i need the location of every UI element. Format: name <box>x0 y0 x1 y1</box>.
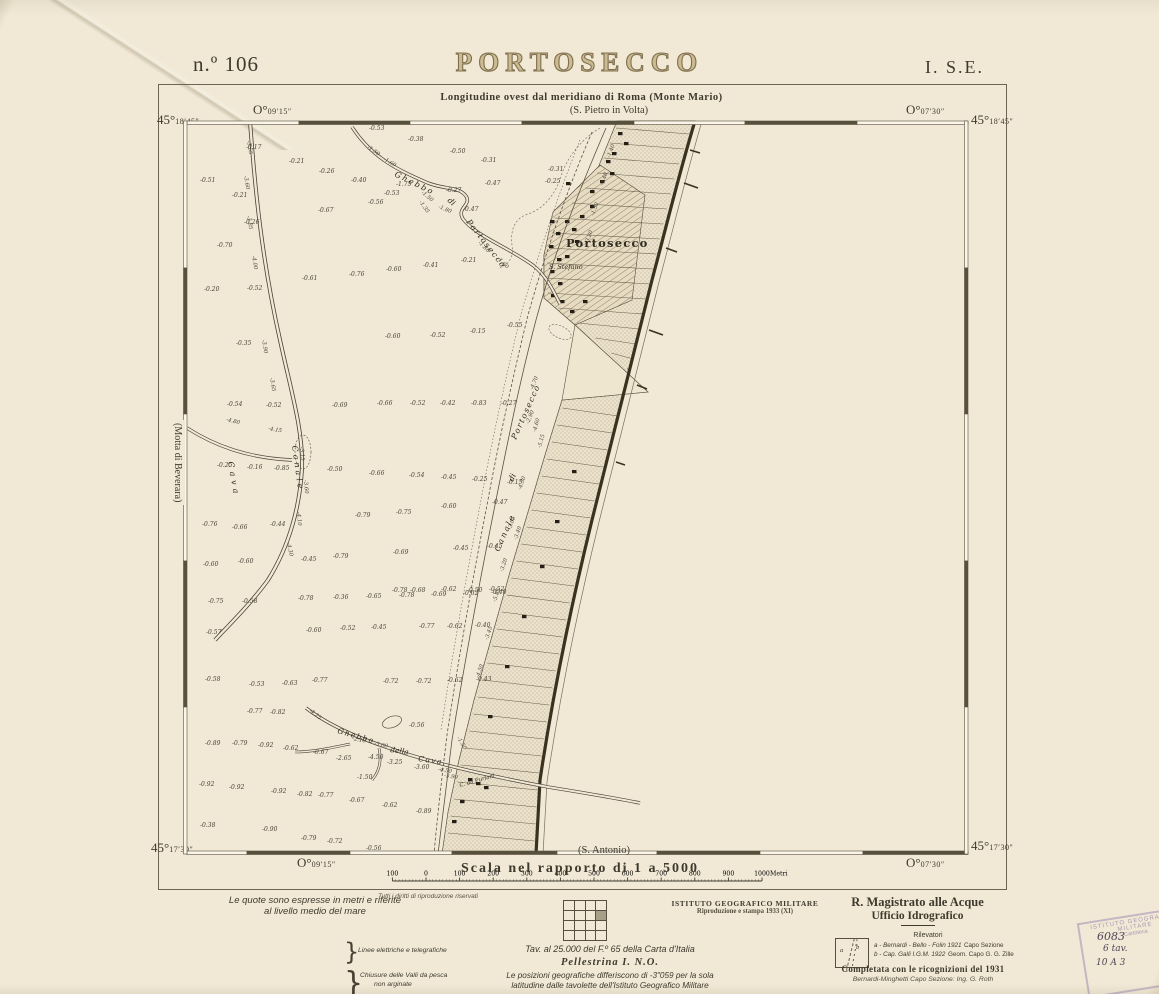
survey-box-b: b <box>856 944 859 951</box>
sounding-label: -0.77 <box>318 792 334 799</box>
sounding-label: -0.92 <box>199 781 215 788</box>
sounding-label: -0.79 <box>301 835 317 842</box>
adjacent-sheet-left: (Motta di Beverara) <box>169 420 189 560</box>
surveyor-row-b: b - Cap. Galli I.G.M. 1922 <box>874 951 945 958</box>
sounding-label: -3.20 <box>499 557 509 573</box>
scale-title: Scala nel rapporto di 1 a 5000 <box>300 861 860 877</box>
sounding-label: -0.66 <box>232 524 248 531</box>
sounding-label: -0.52 <box>340 625 356 632</box>
sounding-label: -0.42 <box>440 400 456 407</box>
completion-note: Completata con le ricognizioni del 1931 <box>833 964 1013 974</box>
sounding-label: -0.47 <box>485 180 501 187</box>
sounding-label: -4.10 <box>295 512 302 527</box>
legend-brace-2: } <box>344 966 363 994</box>
sounding-label: -0.78 <box>298 595 314 602</box>
sounding-label: -0.92 <box>271 788 287 795</box>
sounding-label: -0.62 <box>447 677 463 684</box>
surveyor-role-b: Geom. Capo G. G. Zille <box>948 951 1014 958</box>
sounding-label: -0.47 <box>463 206 479 213</box>
sounding-label: -2.65 <box>336 755 352 762</box>
sounding-label: -0.36 <box>333 594 349 601</box>
sounding-label: -4.60 <box>532 417 542 432</box>
sounding-label: -0.27 <box>501 400 517 407</box>
quadrant-highlight <box>596 911 607 921</box>
sounding-label: -0.92 <box>229 784 245 791</box>
page-title: PORTOSECCO <box>0 47 1159 78</box>
sounding-label: -0.57 <box>206 629 222 636</box>
sounding-label: -3.60 <box>242 175 250 190</box>
sounding-label: -0.67 <box>349 797 365 804</box>
sounding-label: -0.66 <box>369 470 385 477</box>
tavoletta-reference: Tav. al 25.000 del F.º 65 della Carta d'… <box>430 944 790 954</box>
place-label: di <box>446 196 458 208</box>
sounding-label: -0.54 <box>409 472 425 479</box>
survey-box-a: a <box>840 947 843 954</box>
sounding-label: -0.61 <box>302 275 317 282</box>
sounding-label: -0.53 <box>369 125 385 132</box>
sounding-label: -0.56 <box>368 199 384 206</box>
sounding-label: -0.31 <box>548 166 563 173</box>
sounding-label: -0.21 <box>289 158 304 165</box>
sounding-label: -0.26 <box>319 168 335 175</box>
sounding-label: -0.85 <box>274 465 290 472</box>
sounding-label: -0.72 <box>327 838 343 845</box>
sounding-label: -0.25 <box>545 178 561 185</box>
sounding-label: -0.21 <box>461 257 476 264</box>
sounding-label: -0.77 <box>312 677 328 684</box>
sounding-label: -0.75 <box>396 509 412 516</box>
sounding-label: -3.90 <box>260 339 268 354</box>
sounding-label: -0.41 <box>423 262 438 269</box>
sounding-label: -0.45 <box>301 556 317 563</box>
sounding-label: -0.62 <box>283 745 299 752</box>
sounding-label: -4.80 <box>226 417 241 426</box>
rights-note: Tutti i diritti di riproduzione riservat… <box>378 893 478 900</box>
sounding-label: -4.50 <box>368 754 384 761</box>
sounding-label: -0.45 <box>441 474 457 481</box>
sounding-label: -0.89 <box>205 740 221 747</box>
sounding-label: -0.62 <box>463 590 479 597</box>
sounding-label: -3.25 <box>387 759 403 766</box>
sounding-label: -1.50 <box>357 774 373 781</box>
sounding-label: -0.82 <box>270 709 286 716</box>
sounding-label: -3.55 <box>245 140 253 155</box>
sounding-label: -0.47 <box>492 499 508 506</box>
stamp-handwriting-2: 6 tav. <box>1103 944 1127 954</box>
sounding-label: -3.60 <box>414 764 430 771</box>
sounding-label: -3.85 <box>245 215 253 230</box>
sounding-label: -0.38 <box>200 822 216 829</box>
sounding-label: -0.78 <box>399 592 415 599</box>
sounding-label: -0.40 <box>351 177 367 184</box>
sounding-label: -0.69 <box>393 549 409 556</box>
sounding-label: -0.69 <box>431 591 447 598</box>
signature-line: Bernardi-Minghetti Capo Sezione: Ing. G.… <box>833 976 1013 983</box>
sounding-label: -0.77 <box>247 708 263 715</box>
place-label: Canale <box>493 513 518 553</box>
surveyor-role-a: Capo Sezione <box>964 942 1004 949</box>
legend-brace-1: } <box>344 938 359 966</box>
sounding-label: -0.76 <box>202 521 218 528</box>
sounding-label: -0.60 <box>203 561 219 568</box>
sounding-label: -4.15 <box>268 426 283 434</box>
sounding-label: -0.79 <box>333 553 349 560</box>
sounding-label: -0.60 <box>441 503 457 510</box>
sounding-label: -0.15 <box>470 328 486 335</box>
sounding-label: -0.62 <box>382 802 398 809</box>
sounding-label: -0.67 <box>318 207 334 214</box>
sounding-label: -0.66 <box>377 400 393 407</box>
surveyor-row-a: a - Bernardi - Bello - Folin 1921 <box>874 942 962 949</box>
sounding-label: -0.16 <box>247 464 263 471</box>
place-label: della <box>390 745 410 756</box>
sounding-label: -0.63 <box>282 680 298 687</box>
sounding-label: -0.45 <box>371 624 387 631</box>
sounding-label: -0.50 <box>327 466 343 473</box>
sounding-label: -0.70 <box>217 242 233 249</box>
place-label: S. Stefano <box>549 263 583 271</box>
sounding-label: -0.56 <box>366 845 382 852</box>
sounding-label: -0.56 <box>409 722 425 729</box>
sounding-label: -0.83 <box>471 400 487 407</box>
sounding-label: -0.89 <box>416 808 432 815</box>
sounding-label: -0.21 <box>232 192 247 199</box>
sounding-label: -0.79 <box>355 512 371 519</box>
sounding-label: -0.52 <box>247 285 263 292</box>
sounding-label: -0.52 <box>430 332 446 339</box>
geodetic-note: Le posizioni geografiche differiscono di… <box>430 971 790 991</box>
sounding-label: -0.76 <box>349 271 365 278</box>
sounding-label: -5.15 <box>537 433 547 448</box>
sounding-label: -4.00 <box>250 255 258 270</box>
sounding-label: -0.38 <box>408 136 424 143</box>
sounding-label: -0.58 <box>242 598 258 605</box>
sounding-label: -0.45 <box>453 545 469 552</box>
sounding-label: -0.75 <box>208 598 224 605</box>
sounding-label: -0.90 <box>262 826 278 833</box>
sounding-label: -0.25 <box>472 476 488 483</box>
sounding-label: -0.55 <box>507 322 523 329</box>
igm-imprint: ISTITUTO GEOGRAFICO MILITARE Riproduzion… <box>655 899 835 915</box>
sounding-label: -0.77 <box>419 623 435 630</box>
surveyors-heading: Rilevatori <box>868 932 988 939</box>
sounding-label: -0.52 <box>266 402 282 409</box>
sounding-label: -0.79 <box>232 740 248 747</box>
sounding-label: -0.65 <box>366 593 382 600</box>
sheet-index: I. S.E. <box>925 57 984 78</box>
adjacent-sheet-bottom: (S. Antonio) <box>470 845 738 856</box>
sounding-label: -4.30 <box>285 542 294 557</box>
sounding-label: -0.53 <box>249 681 265 688</box>
sounding-label: -0.69 <box>332 402 348 409</box>
sounding-label: -0.58 <box>205 676 221 683</box>
place-label: Portosecco <box>566 236 649 250</box>
sounding-label: -3.90 <box>444 773 459 781</box>
place-label: Cava <box>226 461 241 498</box>
sounding-label: -1.35 <box>417 200 430 215</box>
sounding-label: -0.44 <box>270 521 286 528</box>
sounding-label: -0.82 <box>297 791 313 798</box>
sounding-label: -0.60 <box>306 627 322 634</box>
sounding-label: -0.50 <box>450 148 466 155</box>
sounding-label: -0.60 <box>238 558 254 565</box>
agency-block: R. Magistrato alle Acque Ufficio Idrogra… <box>830 895 1005 926</box>
sounding-label: -0.31 <box>481 157 496 164</box>
map-canvas: -0.53-0.38-0.17-0.21-0.50-0.31-0.26-0.40… <box>158 84 1005 888</box>
sounding-label: -3.65 <box>268 377 276 392</box>
sounding-label: -0.60 <box>386 266 402 273</box>
legend-group-2b: non arginate <box>374 981 412 988</box>
sounding-label: -0.27 <box>446 187 462 194</box>
sounding-label: -3.00 <box>374 741 389 750</box>
stamp-handwriting-1: 6083 <box>1097 930 1125 943</box>
sounding-label: -4.30 <box>517 475 528 491</box>
stamp-handwriting-3: 10 A 3 <box>1096 958 1125 968</box>
sounding-label: -0.53 <box>384 190 400 197</box>
sounding-label: -0.62 <box>447 623 463 630</box>
sounding-label: -0.72 <box>383 678 399 685</box>
sounding-label: -0.60 <box>385 333 401 340</box>
sounding-label: -0.54 <box>227 401 243 408</box>
map-sheet: n.º 106 PORTOSECCO I. S.E. Longitudine o… <box>0 0 1159 994</box>
sounding-label: -0.92 <box>258 742 274 749</box>
tavoletta-name: Pellestrina I. N.O. <box>430 957 790 968</box>
sounding-label: -0.51 <box>200 177 215 184</box>
sounding-label: -0.67 <box>313 749 329 756</box>
sounding-label: -0.52 <box>410 400 426 407</box>
sounding-label: -0.72 <box>416 678 432 685</box>
sounding-label: -0.20 <box>204 286 220 293</box>
quadrant-diagram <box>563 900 607 941</box>
sounding-label: -0.35 <box>236 340 252 347</box>
